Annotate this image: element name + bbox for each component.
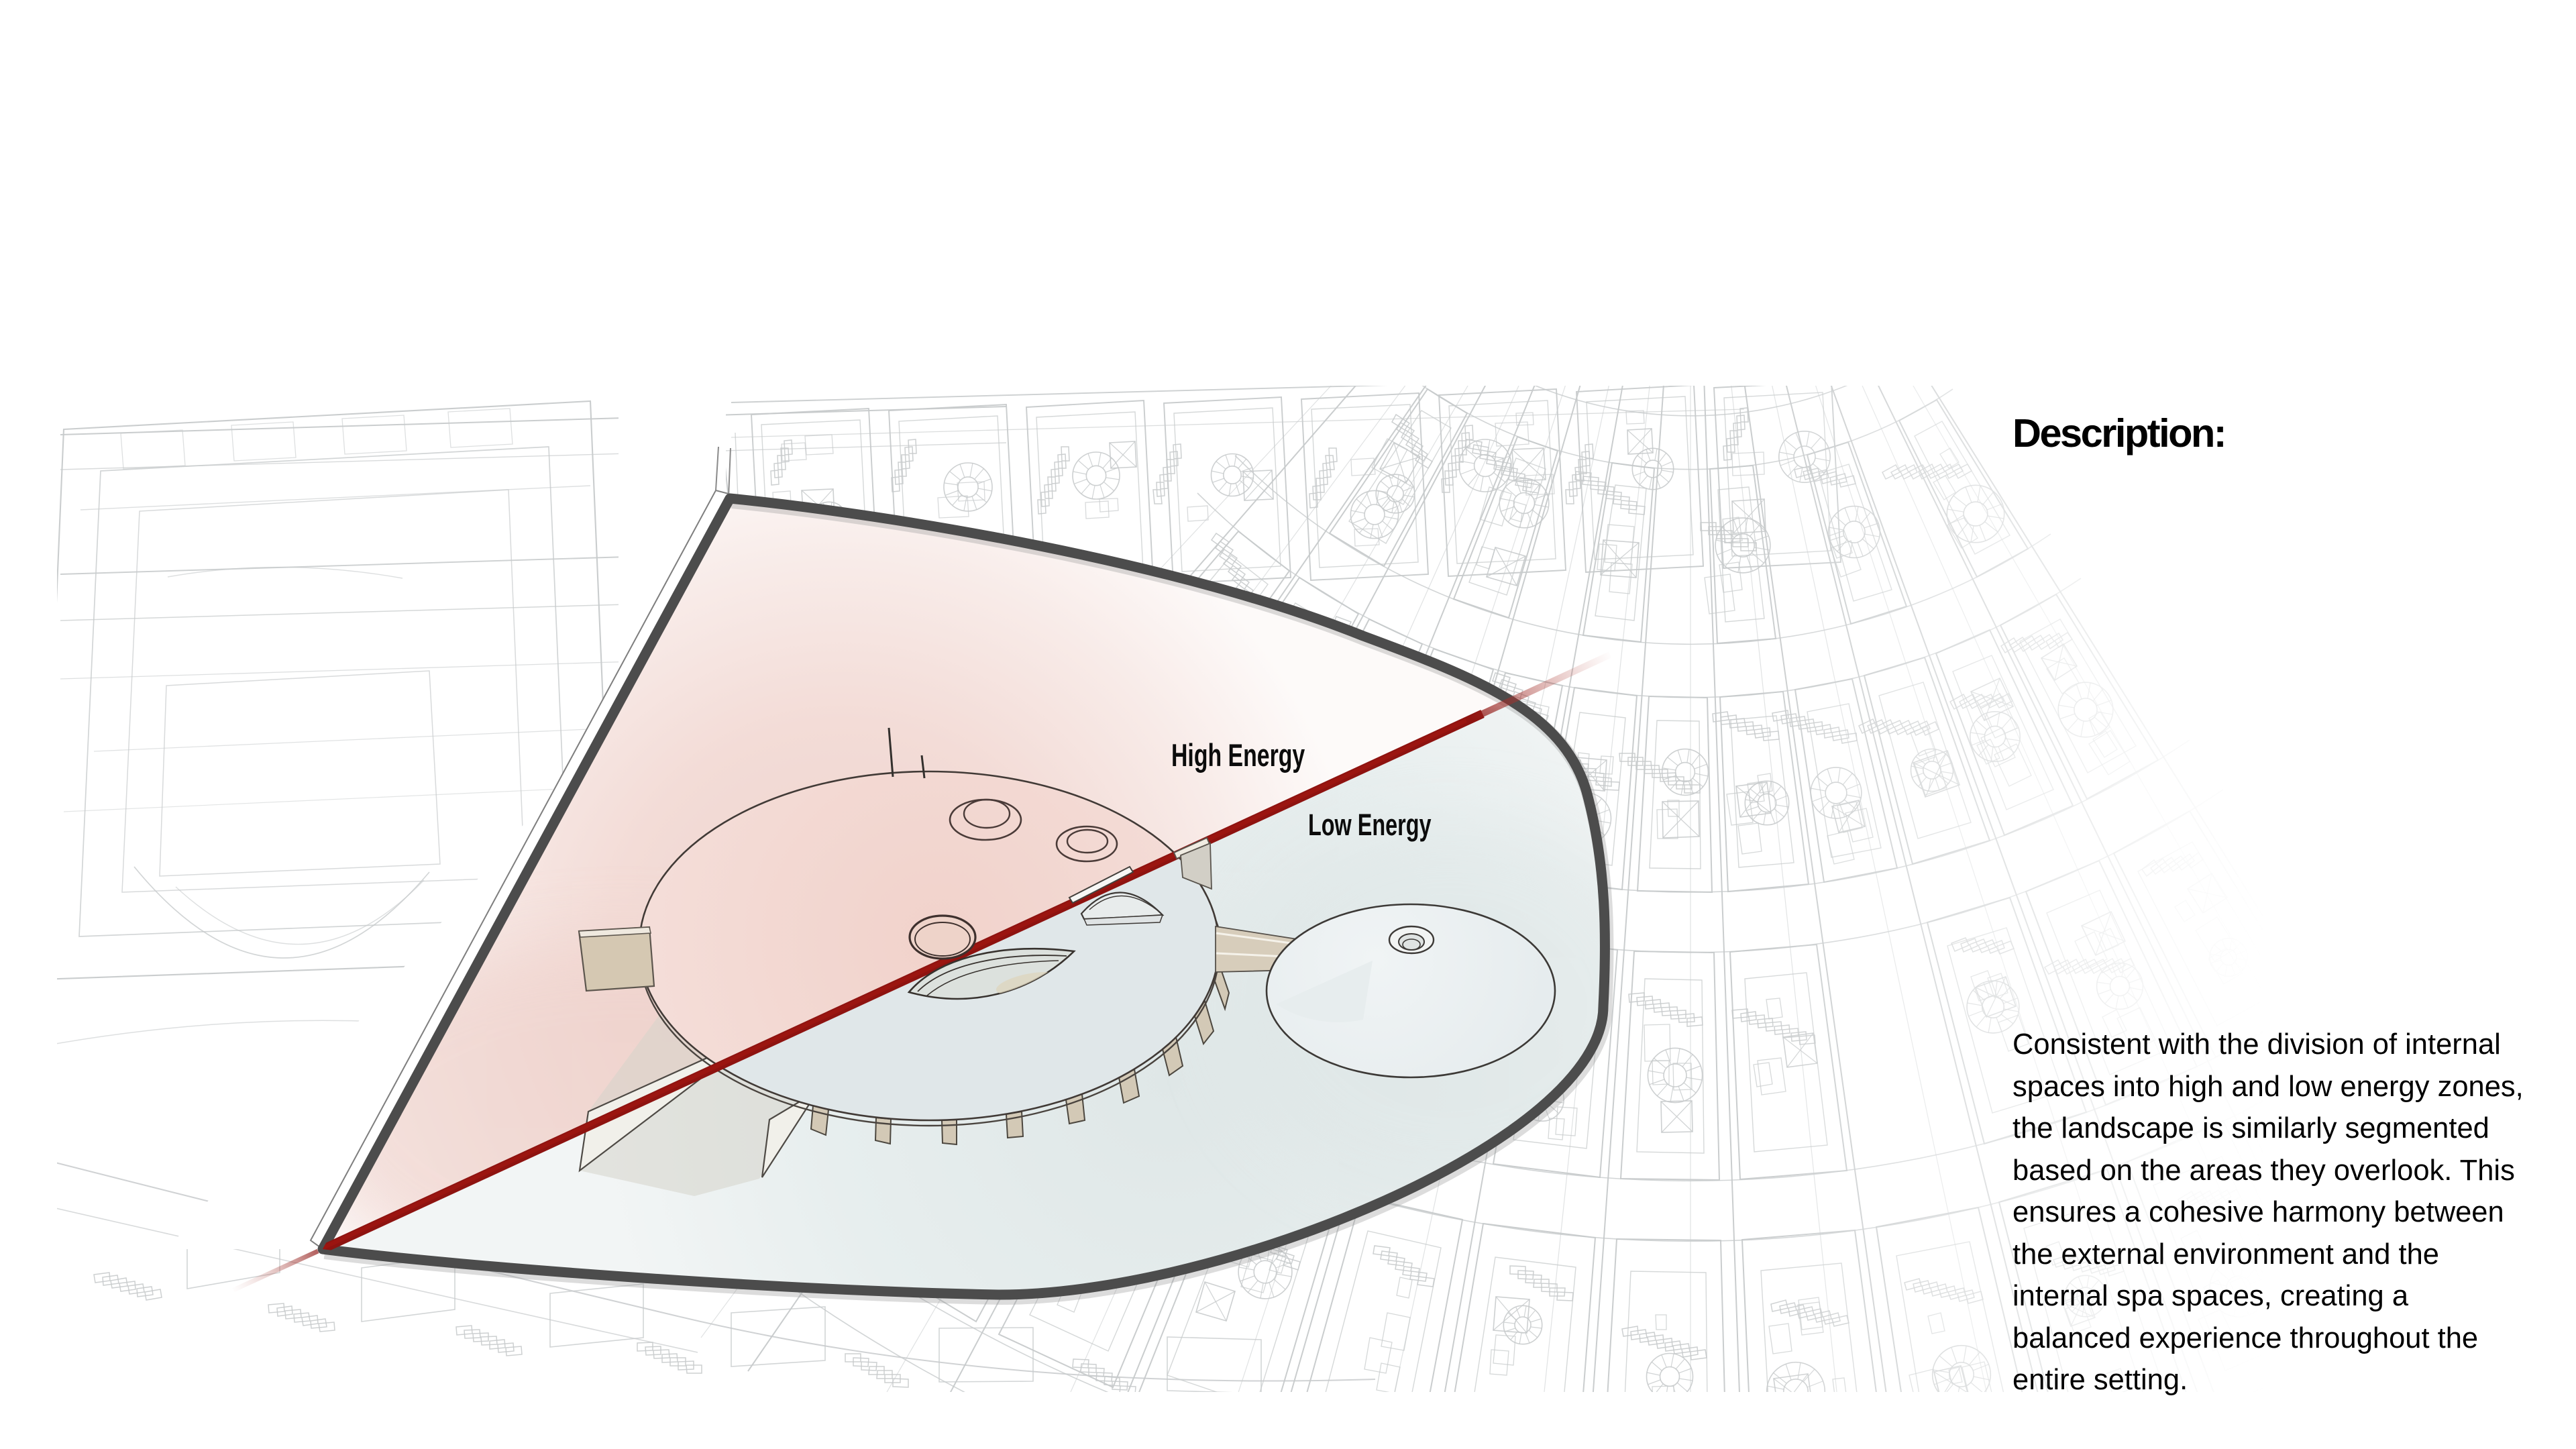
svg-text:Low Energy: Low Energy <box>1308 809 1432 842</box>
svg-text:High Energy: High Energy <box>1171 738 1305 773</box>
